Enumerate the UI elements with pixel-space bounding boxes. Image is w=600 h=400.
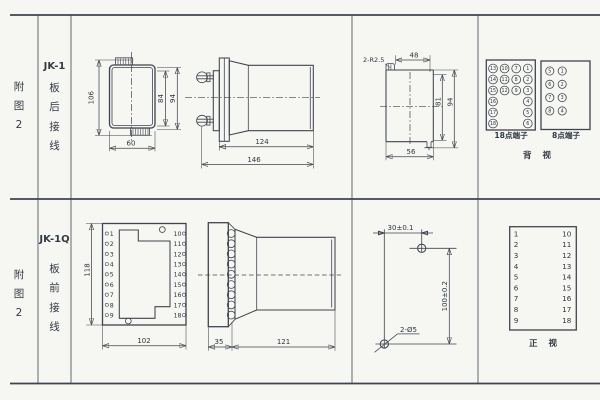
figure-label-top: 附 图 2 xyxy=(0,82,38,131)
terminal-block-8pt-back: 5 6 7 8 1 2 3 4 xyxy=(541,61,590,130)
jk1q-side-view-drawing: 35 121 xyxy=(198,223,341,351)
dim-label-35: 35 xyxy=(215,338,224,346)
holes-callout: 2-Ø5 xyxy=(400,326,417,334)
terminal-number: 14 xyxy=(174,272,182,279)
terminal-number: 9 xyxy=(515,88,518,94)
caption-8pt-terminal: 8点端子 xyxy=(552,132,580,140)
wiring-char: 线 xyxy=(49,141,60,152)
jk1q-front-view-drawing: 1 2 3 4 5 6 7 8 9 10 11 12 13 14 15 16 1… xyxy=(83,224,186,350)
terminal-number: 9 xyxy=(110,313,114,320)
terminal-number: 12 xyxy=(174,251,182,258)
terminal-number: 4 xyxy=(526,99,529,105)
dim-label-48: 48 xyxy=(410,51,419,59)
terminal-number: 1 xyxy=(526,66,529,72)
terminal-number: 6 xyxy=(526,121,529,127)
table-cell: 6 xyxy=(514,283,519,292)
terminal-number: 2 xyxy=(561,82,564,88)
terminal-number: 5 xyxy=(110,272,114,279)
wiring-char: 接 xyxy=(49,303,60,314)
figure-char: 2 xyxy=(16,120,23,131)
dim-label-121: 121 xyxy=(277,338,290,346)
terminal-number: 11 xyxy=(174,241,182,248)
figure-char: 图 xyxy=(14,101,25,112)
jk1-side-view-drawing: 124 146 xyxy=(185,58,320,169)
terminal-block-18pt-back: 13 14 15 16 17 18 10 11 12 7 8 9 1 2 3 4… xyxy=(486,60,535,130)
terminal-number: 8 xyxy=(515,77,518,83)
terminal-number: 6 xyxy=(110,282,114,289)
wiring-char: 板 xyxy=(49,264,60,275)
dim-label-60: 60 xyxy=(127,139,136,147)
dim-label-102: 102 xyxy=(137,337,150,345)
terminal-number: 18 xyxy=(174,313,182,320)
table-cell: 10 xyxy=(562,229,572,238)
table-cell: 16 xyxy=(562,294,572,303)
terminal-number: 10 xyxy=(174,231,182,238)
jk1-rear-view-drawing: 106 84 94 60 xyxy=(88,52,182,151)
terminal-number: 10 xyxy=(502,66,508,72)
model-label-jk1: JK-1 xyxy=(38,62,71,72)
dim-label-118: 118 xyxy=(83,263,91,276)
dim-label-124: 124 xyxy=(255,138,269,146)
caption-front-view: 正 视 xyxy=(529,340,561,349)
terminal-number: 17 xyxy=(490,110,496,116)
table-cell: 14 xyxy=(562,273,572,282)
figure-label-bottom: 附 图 2 xyxy=(0,270,38,319)
dim-label-81: 81 xyxy=(435,97,443,106)
figure-char: 附 xyxy=(14,82,25,93)
table-cell: 4 xyxy=(514,262,519,271)
wiring-char: 后 xyxy=(49,102,60,113)
terminal-number: 2 xyxy=(526,77,529,83)
table-cell: 8 xyxy=(514,305,519,314)
drilling-plan-drawing: 30±0.1 100±0.2 2-Ø5 xyxy=(373,224,457,352)
table-cell: 12 xyxy=(562,251,571,260)
terminal-number: 11 xyxy=(502,77,508,83)
dim-label-30: 30±0.1 xyxy=(388,224,414,232)
terminal-table-front: 1 2 3 4 5 6 7 8 9 10 11 12 13 14 15 16 1… xyxy=(510,227,577,330)
terminal-number: 16 xyxy=(490,99,496,105)
table-cell: 3 xyxy=(514,251,519,260)
radius-callout: 2-R2.5 xyxy=(363,56,384,64)
caption-back-view: 背 视 xyxy=(523,152,555,161)
terminal-number: 8 xyxy=(110,302,114,309)
figure-char: 附 xyxy=(14,270,25,281)
terminal-number: 13 xyxy=(490,66,496,72)
table-cell: 17 xyxy=(562,305,571,314)
table-cell: 1 xyxy=(514,229,519,238)
table-cell: 5 xyxy=(514,273,519,282)
wiring-char: 接 xyxy=(49,122,60,133)
dim-label-106: 106 xyxy=(88,90,96,104)
wiring-char: 线 xyxy=(49,322,60,333)
model-label-jk1q: JK-1Q xyxy=(38,235,71,245)
table-cell: 13 xyxy=(562,262,571,271)
terminal-number: 5 xyxy=(526,110,529,116)
terminal-number: 8 xyxy=(548,109,551,115)
dim-label-94: 94 xyxy=(169,94,177,103)
terminal-number: 17 xyxy=(174,302,182,309)
figure-char: 2 xyxy=(16,308,23,319)
table-cell: 9 xyxy=(514,316,519,325)
terminal-number: 7 xyxy=(548,95,551,101)
terminal-number: 4 xyxy=(561,109,564,115)
terminal-number: 3 xyxy=(561,95,564,101)
terminal-number: 5 xyxy=(548,69,551,75)
table-cell: 15 xyxy=(562,283,571,292)
wiring-char: 板 xyxy=(49,83,60,94)
table-cell: 11 xyxy=(562,240,571,249)
terminal-number: 7 xyxy=(110,292,114,299)
wiring-char: 前 xyxy=(49,283,60,294)
drawing-canvas: 106 84 94 60 124 146 xyxy=(0,0,600,400)
figure-char: 图 xyxy=(14,289,25,300)
wiring-label-top: 板 后 接 线 xyxy=(38,83,71,152)
terminal-number: 7 xyxy=(515,66,518,72)
dim-label-84: 84 xyxy=(157,94,165,103)
dim-label-56: 56 xyxy=(407,148,416,156)
terminal-number: 13 xyxy=(174,262,182,269)
terminal-number: 4 xyxy=(110,262,114,269)
terminal-number: 1 xyxy=(561,69,564,75)
terminal-number: 12 xyxy=(502,88,508,94)
terminal-number: 1 xyxy=(110,231,114,238)
table-cell: 18 xyxy=(562,316,572,325)
dim-label-146: 146 xyxy=(247,156,261,164)
table-cell: 2 xyxy=(514,240,519,249)
terminal-number: 18 xyxy=(490,121,496,127)
table-cell: 7 xyxy=(514,294,519,303)
terminal-number: 6 xyxy=(548,82,551,88)
terminal-number: 15 xyxy=(174,282,182,289)
dim-label-94b: 94 xyxy=(447,97,455,106)
terminal-number: 14 xyxy=(490,77,496,83)
table-grid xyxy=(10,15,600,384)
caption-18pt-terminal: 18点端子 xyxy=(494,132,527,140)
dim-label-100: 100±0.2 xyxy=(441,281,449,311)
panel-cutout-drawing: 2-R2.5 48 81 94 56 xyxy=(363,51,458,160)
terminal-number: 2 xyxy=(110,241,114,248)
terminal-number: 16 xyxy=(174,292,182,299)
terminal-number: 15 xyxy=(490,88,496,94)
wiring-label-bottom: 板 前 接 线 xyxy=(38,264,71,333)
terminal-number: 3 xyxy=(110,251,114,258)
technical-drawing-sheet: 106 84 94 60 124 146 xyxy=(0,0,600,400)
terminal-number: 3 xyxy=(526,88,529,94)
